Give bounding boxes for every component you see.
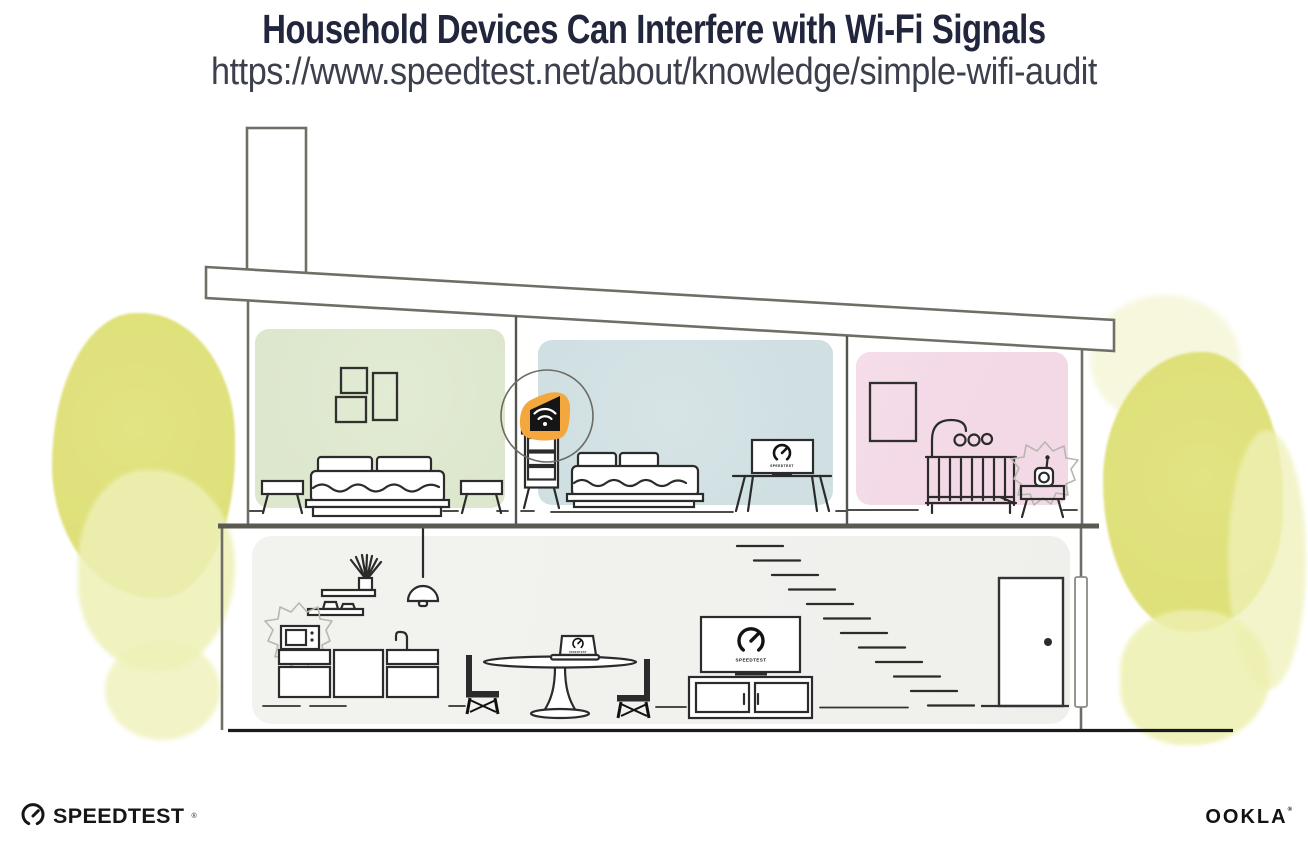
- wall-frames-master: [336, 368, 397, 422]
- tv-table-second-bedroom: [733, 476, 831, 511]
- wall-frame-nursery: [870, 383, 916, 441]
- downspout: [1075, 577, 1087, 707]
- kitchen-shelf-upper: [322, 555, 381, 596]
- house-cross-section: SPEEDTEST: [0, 0, 1308, 861]
- front-door: [981, 578, 1069, 706]
- ookla-wordmark: OOKLA: [1205, 806, 1287, 828]
- bed-master: [306, 457, 449, 516]
- dining-laptop-screen-label: SPEEDTEST: [569, 651, 587, 654]
- speedtest-registered-mark: ®: [191, 813, 196, 820]
- nightstand-right: [461, 481, 502, 513]
- crib: [926, 457, 1016, 513]
- baby-mobile: [932, 420, 992, 457]
- baby-monitor: [1035, 455, 1053, 486]
- sink-faucet: [396, 632, 407, 650]
- living-room-tv-screen-label: SPEEDTEST: [736, 658, 767, 663]
- door-knob: [1044, 638, 1052, 646]
- speedtest-wordmark: SPEEDTEST: [53, 804, 184, 829]
- router-shelf: [522, 429, 563, 508]
- baby-monitor-table: [1021, 486, 1064, 517]
- tv-console: [689, 677, 812, 718]
- chimney: [247, 128, 306, 278]
- speedtest-logo: SPEEDTEST®: [20, 803, 197, 829]
- pendant-lamp: [408, 528, 438, 606]
- speedtest-gauge-icon: [20, 803, 46, 829]
- bedroom-tv-screen-label: SPEEDTEST: [770, 464, 794, 468]
- dining-chair-right: [617, 659, 650, 718]
- infographic-canvas: Household Devices Can Interfere with Wi-…: [0, 0, 1308, 861]
- nightstand-left: [262, 481, 303, 513]
- bed-second-bedroom: [567, 453, 703, 507]
- microwave: [281, 626, 319, 649]
- ookla-logo: OOKLA®: [1205, 806, 1292, 829]
- living-room-tv: SPEEDTEST: [701, 617, 800, 676]
- roof: [206, 267, 1114, 351]
- plant: [351, 555, 381, 578]
- dining-table: [484, 657, 636, 719]
- ookla-registered-mark: ®: [1288, 807, 1292, 813]
- bedroom-tv: SPEEDTEST: [752, 440, 813, 477]
- dining-laptop: SPEEDTEST: [551, 636, 599, 660]
